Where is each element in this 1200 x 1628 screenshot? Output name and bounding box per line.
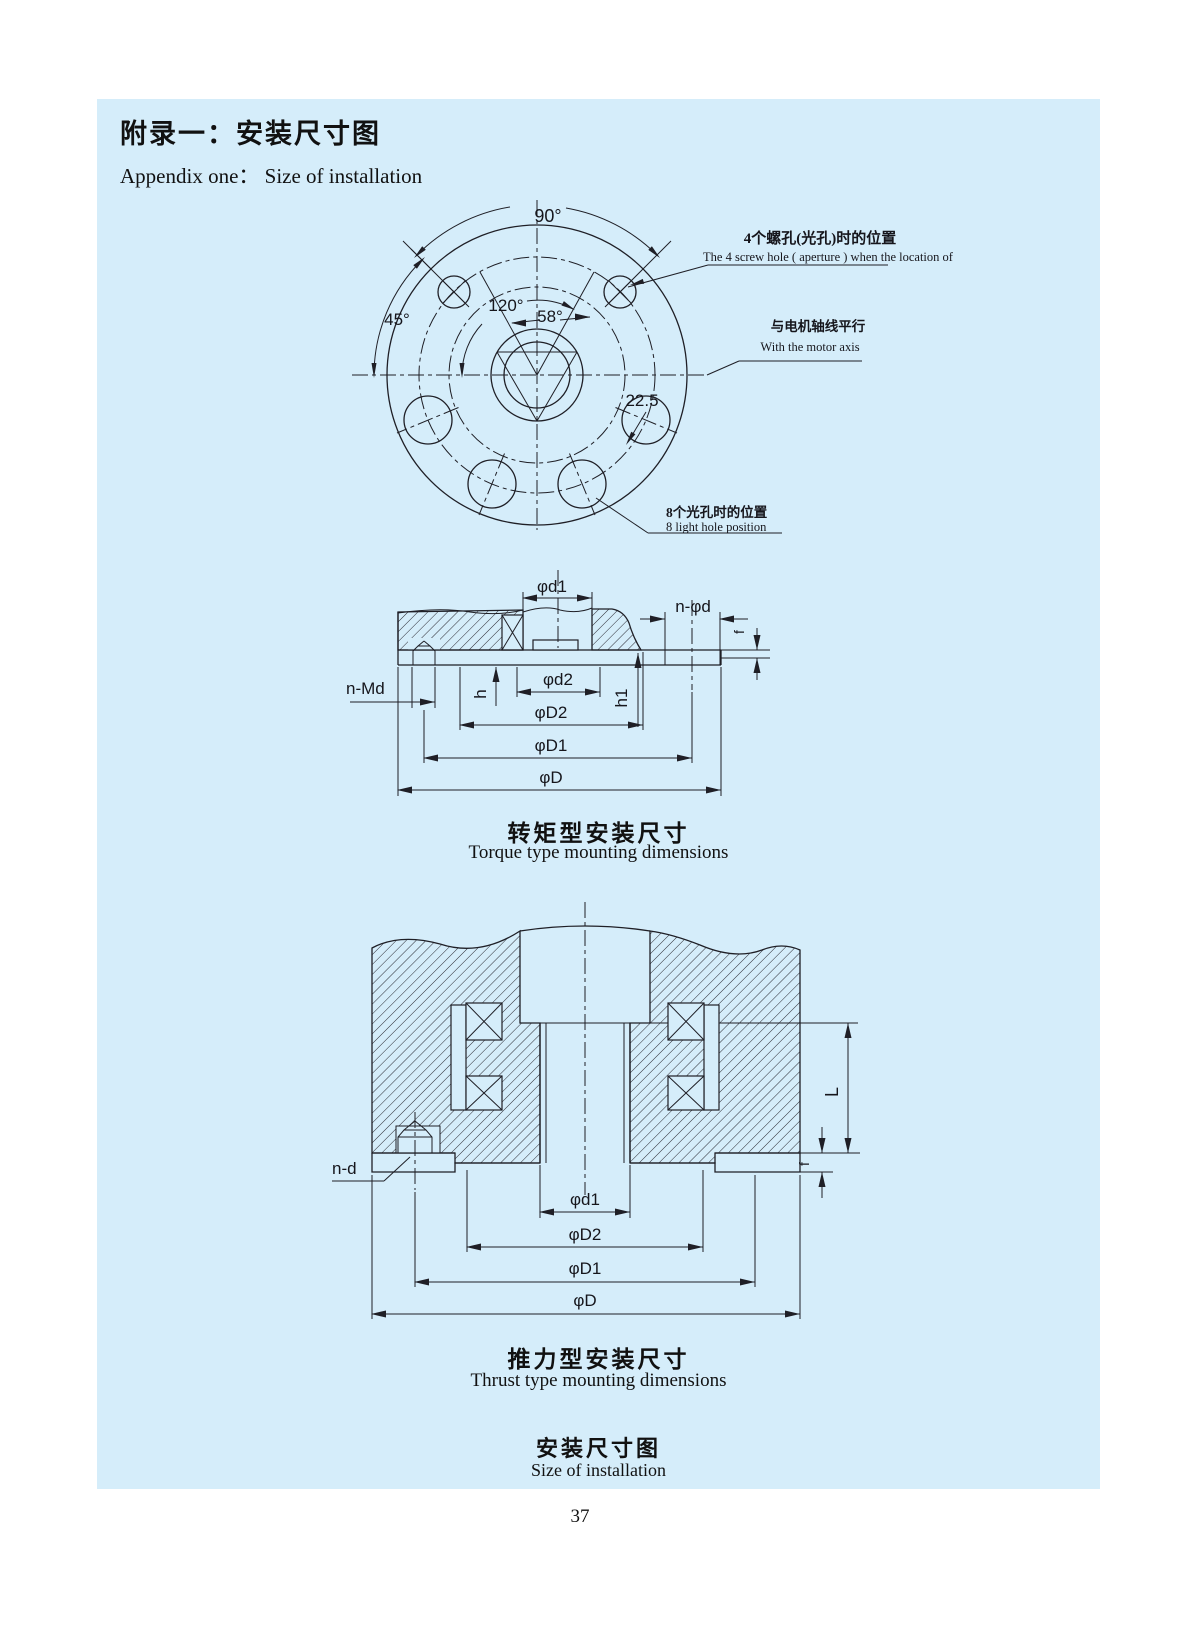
dim-phid1: φd1	[523, 577, 592, 598]
light-hole	[397, 396, 459, 444]
svg-text:φd2: φd2	[543, 670, 573, 689]
svg-text:φD1: φD1	[535, 736, 568, 755]
thrust-section: n-d L f φd1	[332, 902, 860, 1319]
footer-caption-en: Size of installation	[97, 1460, 1100, 1481]
dim-58: 58°	[512, 307, 590, 326]
flange-top-view: 90° 45° 120° 58°	[352, 200, 954, 534]
torque-caption-en: Torque type mounting dimensions	[97, 842, 1100, 864]
angle-120-label: 120°	[488, 296, 523, 315]
angle-90-label: 90°	[534, 206, 561, 226]
angle-45-label: 45°	[384, 310, 410, 329]
light-hole-note: 8个光孔时的位置 8 light hole position	[596, 498, 782, 534]
dim-h: h	[471, 667, 496, 706]
svg-text:f: f	[731, 630, 747, 634]
svg-text:h: h	[471, 689, 490, 698]
page-number: 37	[0, 1506, 1160, 1528]
svg-text:φD2: φD2	[569, 1225, 602, 1244]
light-hole	[468, 454, 516, 516]
dim-phid1-thrust: φd1	[540, 1165, 630, 1218]
dim-22-5: 22.5	[625, 391, 658, 445]
light-hole-note-en: 8 light hole position	[666, 520, 767, 534]
light-hole-note-cn: 8个光孔时的位置	[666, 504, 768, 520]
center-boss	[533, 640, 578, 650]
svg-text:n-Md: n-Md	[346, 679, 385, 698]
screw-hole-note: 4个螺孔(光孔)时的位置 The 4 screw hole ( aperture…	[628, 229, 954, 287]
screw-hole-note-cn: 4个螺孔(光孔)时的位置	[744, 229, 897, 247]
dim-n-md: n-Md	[346, 679, 435, 702]
torque-section: φd1 n-φd f n-Md h	[346, 570, 770, 796]
screw-hole-note-en: The 4 screw hole ( aperture ) when the l…	[703, 250, 954, 264]
document-page: 附录一：安装尺寸图 Appendix one： Size of installa…	[0, 0, 1200, 1628]
angle-58-label: 58°	[537, 307, 563, 326]
thrust-caption-cn: 推力型安装尺寸	[97, 1340, 1100, 1374]
dim-f: f	[721, 628, 770, 680]
svg-text:φD1: φD1	[569, 1259, 602, 1278]
svg-text:φD: φD	[573, 1291, 596, 1310]
svg-text:n-φd: n-φd	[675, 597, 711, 616]
svg-text:h1: h1	[612, 689, 631, 708]
motor-axis-note-en: With the motor axis	[760, 340, 859, 354]
angle-22-5-label: 22.5	[625, 391, 658, 410]
light-hole	[558, 454, 606, 516]
motor-axis-note-cn: 与电机轴线平行	[771, 318, 866, 334]
dim-45: 45°	[372, 249, 432, 378]
dim-h1: h1	[612, 653, 638, 727]
bearing-section	[502, 615, 523, 650]
dim-L: L	[800, 1023, 860, 1153]
motor-axis-note: 与电机轴线平行 With the motor axis	[707, 318, 866, 375]
svg-text:φD: φD	[539, 768, 562, 787]
footer-caption-cn: 安装尺寸图	[97, 1431, 1100, 1463]
dim-n-d: n-d	[332, 1157, 410, 1181]
dim-n-phid: n-φd	[640, 597, 748, 619]
mounting-bolt	[412, 641, 435, 708]
svg-text:L: L	[822, 1087, 842, 1097]
svg-text:φd1: φd1	[537, 577, 567, 596]
svg-text:n-d: n-d	[332, 1159, 357, 1178]
dim-f-thrust: f	[796, 1127, 833, 1198]
svg-text:φd1: φd1	[570, 1190, 600, 1209]
svg-text:f: f	[796, 1162, 812, 1166]
thrust-caption-en: Thrust type mounting dimensions	[97, 1370, 1100, 1392]
svg-text:φD2: φD2	[535, 703, 568, 722]
dim-phid2: φd2	[517, 667, 600, 697]
